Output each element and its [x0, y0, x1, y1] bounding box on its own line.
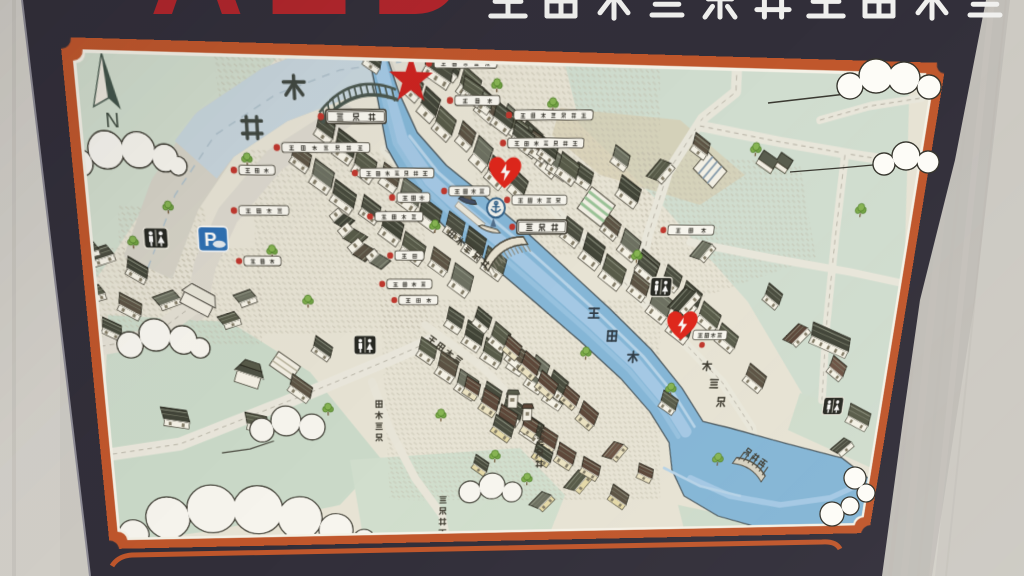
svg-text:AED: AED [150, 0, 484, 42]
